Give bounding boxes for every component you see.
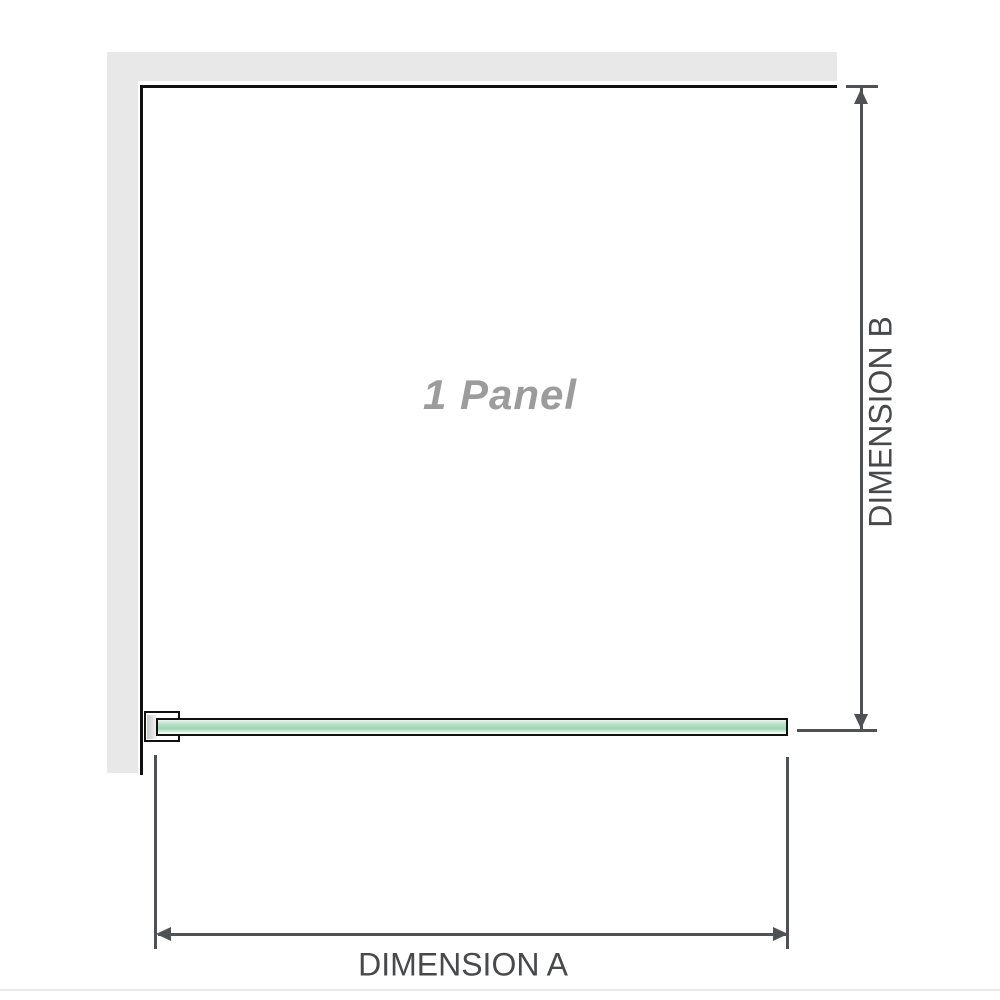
dimension-a-extension-right [786,757,789,949]
dimension-a-label: DIMENSION A [358,947,568,984]
dimension-a-line [158,933,787,936]
wall-left [107,52,138,773]
panel-outline-left [140,85,143,775]
glass-panel-bar [156,718,788,736]
arrow-up-icon [854,89,868,104]
panel-outline-top [140,85,837,88]
wall-top [107,52,837,81]
arrow-left-icon [156,927,171,941]
dimension-b-label: DIMENSION B [863,316,900,528]
dimension-a-extension-left [154,755,157,949]
arrow-down-icon [854,714,868,729]
arrow-right-icon [773,927,788,941]
panel-count-label: 1 Panel [423,371,577,419]
shower-panel-diagram: 1 Panel DIMENSION B DIMENSION A [0,0,1000,1000]
footer-divider [0,989,1000,991]
dimension-b-tick-bottom [797,729,877,732]
